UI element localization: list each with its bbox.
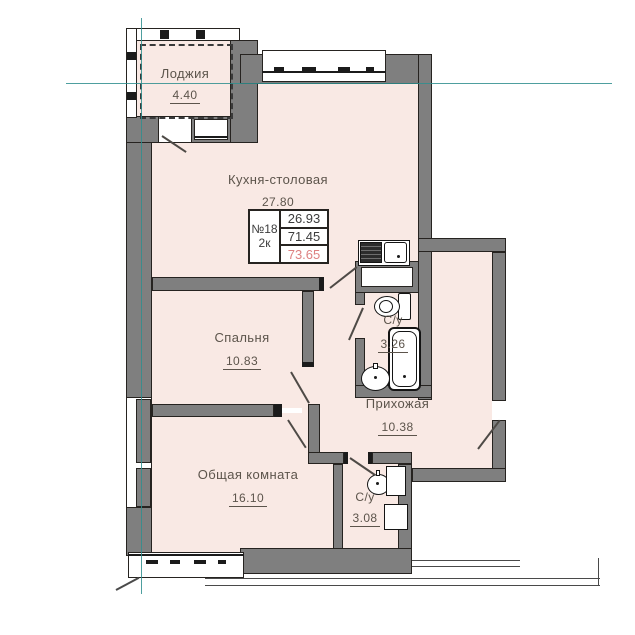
loggia-glazing-left: [126, 28, 137, 118]
window-tick: [170, 560, 180, 564]
living-label: Общая комната: [158, 467, 338, 482]
axis-line-horizontal: [66, 83, 612, 84]
bedroom-label: Спальня: [182, 330, 302, 345]
wall-cap: [319, 277, 324, 291]
section-line-diagonal: [116, 577, 140, 591]
section-line: [205, 578, 600, 579]
left-window-mullion: [136, 468, 151, 507]
unit-number: №18: [251, 223, 277, 237]
glazing-mullion: [127, 52, 136, 60]
kitchen-label: Кухня-столовая: [198, 172, 358, 187]
loggia-label: Лоджия: [140, 66, 230, 81]
window-tick: [366, 67, 374, 72]
loggia-area: 4.40: [140, 86, 230, 104]
wall-living-top: [152, 404, 274, 417]
unit-total-area: 73.65: [281, 246, 327, 262]
wall-hall-strip-top: [418, 238, 506, 252]
unit-area-without-loggia: 71.45: [281, 229, 327, 247]
loggia-glazing-top: [126, 28, 240, 41]
glazing-mullion: [127, 92, 136, 100]
kitchen-sink-faucet: [397, 255, 400, 258]
kitchen-sink-basin: [384, 242, 407, 263]
window-tick: [302, 67, 316, 72]
wall-bottom: [240, 548, 412, 574]
wall-kitchen-bedroom: [152, 277, 324, 291]
sink-faucet: [376, 470, 380, 476]
section-line: [412, 560, 520, 561]
kitchen-sink-drainer: [360, 242, 382, 263]
toilet-bowl-inner: [379, 300, 393, 313]
wall-nook-bottom: [308, 452, 344, 464]
bedroom-area: 10.83: [182, 352, 302, 370]
window-tick: [338, 67, 350, 72]
wall-cap: [344, 452, 348, 464]
hallway-area: 10.38: [340, 418, 455, 436]
section-line: [598, 558, 599, 586]
unit-info-table: №18 2к 26.93 71.45 73.65: [248, 209, 329, 264]
wall-bedroom-right: [302, 291, 314, 367]
wall-cap: [274, 404, 282, 417]
washbasin-faucet: [373, 363, 378, 369]
entrance-door-opening: [492, 400, 506, 421]
window-tick: [274, 67, 284, 72]
wall-bath-main-left-a: [355, 291, 365, 305]
glazing-mullion: [196, 30, 205, 39]
washbasin-drain: [374, 376, 377, 379]
wall-right-lower: [492, 252, 506, 482]
unit-areas-column: 26.93 71.45 73.65: [279, 211, 327, 262]
hallway-label: Прихожая: [340, 396, 455, 411]
bathtub-drain: [403, 375, 406, 378]
unit-id-cell: №18 2к: [250, 211, 279, 262]
unit-living-area: 26.93: [281, 211, 327, 229]
section-line: [412, 566, 520, 567]
bath-main-area: 3.26: [368, 335, 418, 353]
duct-shaft: [356, 262, 418, 292]
wall-bath-guest-top: [372, 452, 412, 464]
bedroom-floor: [146, 288, 314, 408]
window-tick: [146, 560, 158, 564]
sink-drain: [376, 482, 379, 485]
bath-guest-area: 3.08: [340, 509, 390, 527]
wall-nook-left: [308, 404, 320, 455]
window-tick: [194, 560, 206, 564]
living-area: 16.10: [158, 489, 338, 507]
wall-cap: [302, 362, 314, 367]
window-tick: [218, 560, 226, 564]
hall-strip-floor: [428, 246, 494, 396]
bath-main-label: С/у: [368, 313, 418, 327]
axis-line-vertical: [141, 18, 142, 594]
bath-guest-label: С/у: [340, 490, 390, 504]
wall-cap: [368, 452, 372, 464]
glazing-mullion: [160, 30, 169, 39]
floor-plan-canvas: Лоджия 4.40 Кухня-столовая 27.80 Спальня…: [0, 0, 635, 635]
bottom-window-sill: [128, 554, 244, 556]
balcony-window-sill: [194, 136, 228, 138]
balcony-door-opening: [158, 116, 192, 143]
wall-hallway-bottom: [412, 468, 506, 482]
left-window-mullion: [136, 399, 151, 463]
kitchen-window: [262, 50, 386, 82]
section-line: [205, 585, 600, 586]
loggia-railing: [140, 44, 233, 119]
unit-type: 2к: [259, 237, 271, 251]
